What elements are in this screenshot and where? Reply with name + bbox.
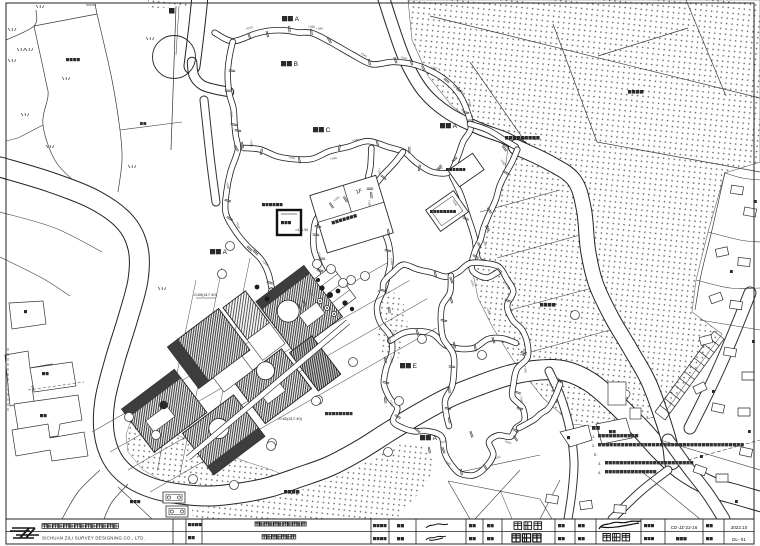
svg-text:+040: +040 <box>391 330 396 338</box>
svg-text:+040: +040 <box>316 26 324 31</box>
svg-text:A: A <box>295 16 300 23</box>
svg-text:+040: +040 <box>317 252 322 260</box>
svg-text:-0.60(417.40): -0.60(417.40) <box>193 292 218 297</box>
svg-text:+040: +040 <box>367 200 372 208</box>
svg-text:+040: +040 <box>519 396 524 404</box>
svg-text:+040: +040 <box>249 140 254 148</box>
svg-text:+040: +040 <box>389 400 394 408</box>
svg-text:+040: +040 <box>229 110 234 118</box>
svg-text:+040: +040 <box>308 25 315 29</box>
svg-text:C: C <box>326 127 331 134</box>
svg-text:A: A <box>453 123 458 130</box>
svg-text:SICHUAN ZILI SURVEY DESIGNING: SICHUAN ZILI SURVEY DESIGNING CO., LTD. <box>42 536 145 541</box>
svg-text:CD-JZ-22-16: CD-JZ-22-16 <box>671 525 698 530</box>
svg-text:=414.90: =414.90 <box>295 228 308 232</box>
svg-text:A: A <box>433 435 438 442</box>
svg-text:2.: 2. <box>592 443 595 448</box>
svg-text:-0.60(417.40): -0.60(417.40) <box>278 416 303 421</box>
svg-text:2022.10: 2022.10 <box>731 525 748 530</box>
svg-text:+040: +040 <box>377 168 382 176</box>
svg-text:1.: 1. <box>592 434 595 439</box>
svg-text:A: A <box>223 249 228 256</box>
svg-text:E.: E. <box>594 452 598 457</box>
svg-text:DL- 01: DL- 01 <box>732 537 746 542</box>
svg-text:+040: +040 <box>389 356 394 364</box>
svg-text:E: E <box>413 363 418 370</box>
svg-text:3.: 3. <box>598 461 601 466</box>
svg-text:+040: +040 <box>523 366 528 374</box>
svg-text:B: B <box>294 61 298 68</box>
svg-text:4.: 4. <box>598 470 601 475</box>
